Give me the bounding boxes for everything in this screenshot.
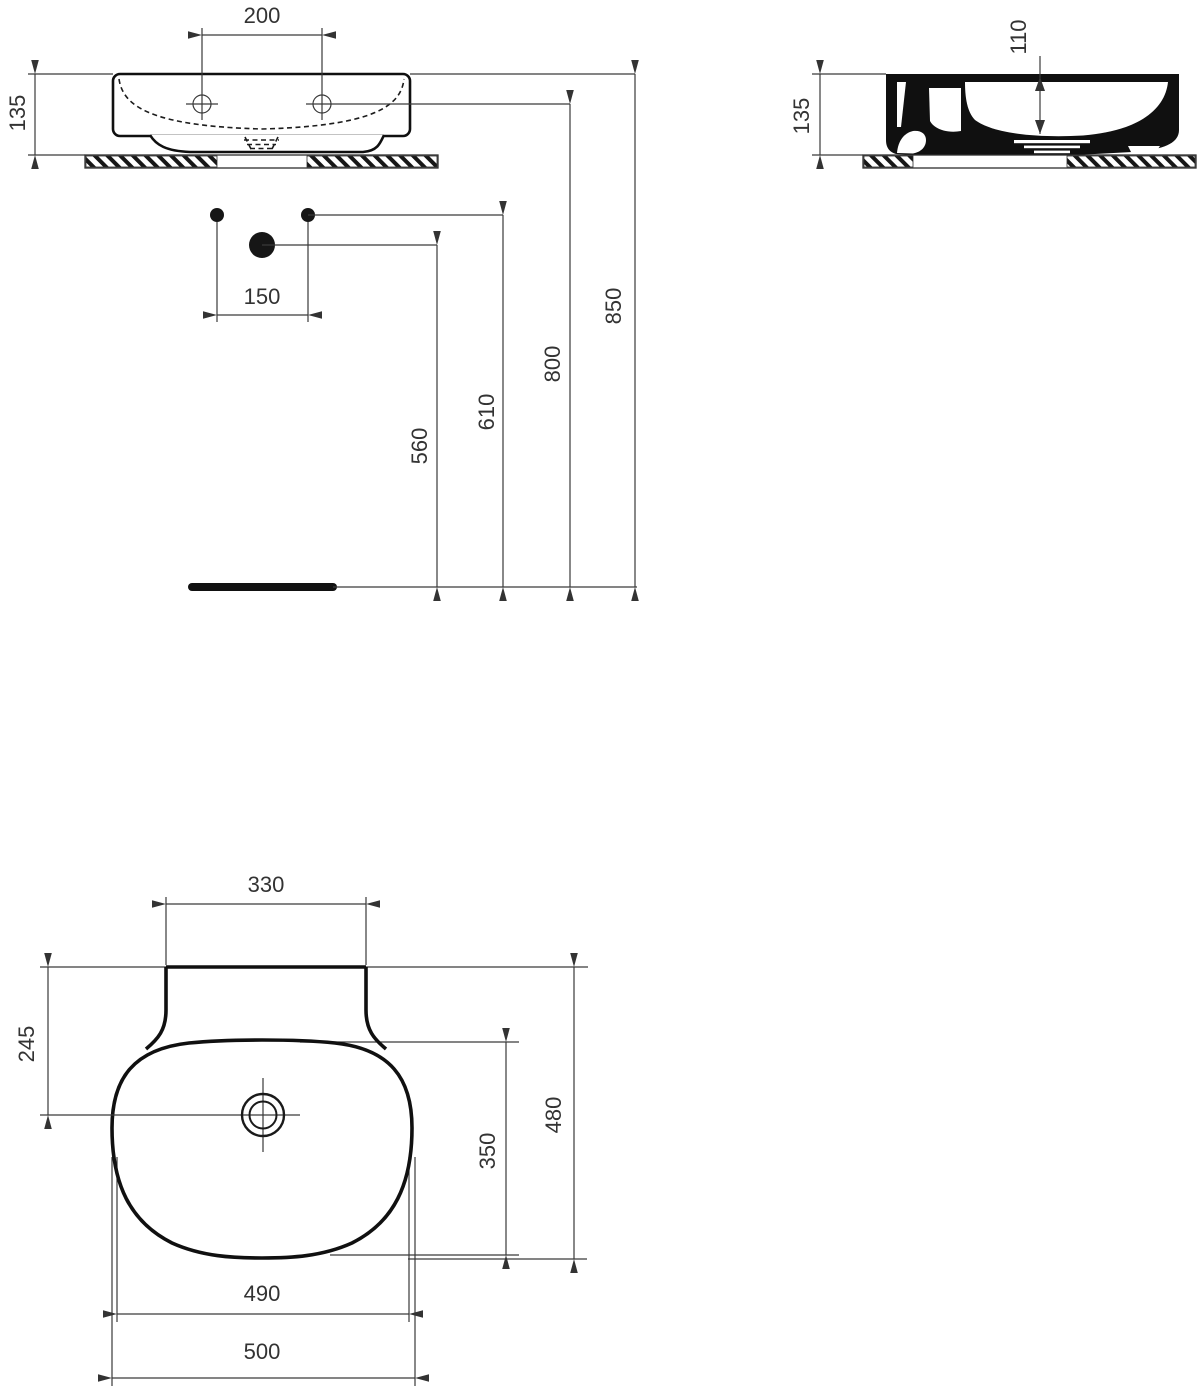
dim-rim-height: 850 bbox=[601, 74, 635, 587]
counter-section bbox=[85, 155, 438, 168]
dim-label-850: 850 bbox=[601, 288, 626, 325]
front-view: 200 135 150 560 610 800 8 bbox=[5, 3, 637, 587]
washbasin-dimension-drawing: 200 135 150 560 610 800 8 bbox=[0, 0, 1200, 1386]
dim-label-800: 800 bbox=[540, 346, 565, 383]
plan-view: 330 245 350 480 490 500 bbox=[14, 872, 588, 1386]
dim-label-500: 500 bbox=[244, 1339, 281, 1364]
neck-right bbox=[366, 967, 386, 1049]
dim-drain-outlet-height: 560 bbox=[407, 245, 437, 587]
dim-label-245: 245 bbox=[14, 1026, 39, 1063]
dim-label-480: 480 bbox=[541, 1097, 566, 1134]
dim-drain-from-back: 245 bbox=[14, 967, 48, 1115]
dim-basin-height-side: 135 bbox=[789, 74, 820, 155]
dim-label-610: 610 bbox=[474, 394, 499, 431]
dim-hole-offset: 150 bbox=[217, 284, 308, 315]
dim-overall-width: 500 bbox=[112, 1339, 415, 1378]
dim-overall-depth: 480 bbox=[541, 967, 574, 1259]
supply-point-left bbox=[210, 208, 224, 222]
drain-symbol bbox=[40, 1078, 300, 1152]
rim-ledge-void bbox=[929, 88, 961, 132]
technical-drawing-page: 200 135 150 560 610 800 8 bbox=[0, 0, 1200, 1386]
dim-back-edge-width: 330 bbox=[166, 872, 366, 965]
dim-label-110: 110 bbox=[1006, 19, 1031, 54]
dim-tap-hole-height: 800 bbox=[540, 104, 570, 587]
side-view: 135 110 bbox=[789, 19, 1196, 168]
dim-bowl-depth-plan: 350 bbox=[475, 1042, 506, 1255]
dim-bowl-width: 490 bbox=[117, 1281, 409, 1314]
dim-label-135-front: 135 bbox=[5, 95, 30, 132]
basin-foot-outline bbox=[150, 135, 384, 152]
dim-supply-height: 610 bbox=[474, 215, 503, 587]
dim-label-135-side: 135 bbox=[789, 98, 814, 135]
dim-tap-hole-spacing: 200 bbox=[202, 3, 322, 35]
dim-label-330: 330 bbox=[248, 872, 285, 897]
dim-label-150: 150 bbox=[244, 284, 281, 309]
dim-basin-height-front: 135 bbox=[5, 74, 85, 155]
neck-left bbox=[146, 967, 166, 1049]
bowl-outline bbox=[112, 1040, 412, 1258]
counter-section-side bbox=[863, 155, 1196, 168]
basin-body-outline bbox=[113, 74, 410, 136]
dim-label-350: 350 bbox=[475, 1133, 500, 1170]
dim-label-560: 560 bbox=[407, 428, 432, 465]
dim-label-490: 490 bbox=[244, 1281, 281, 1306]
dim-label-200: 200 bbox=[244, 3, 281, 28]
